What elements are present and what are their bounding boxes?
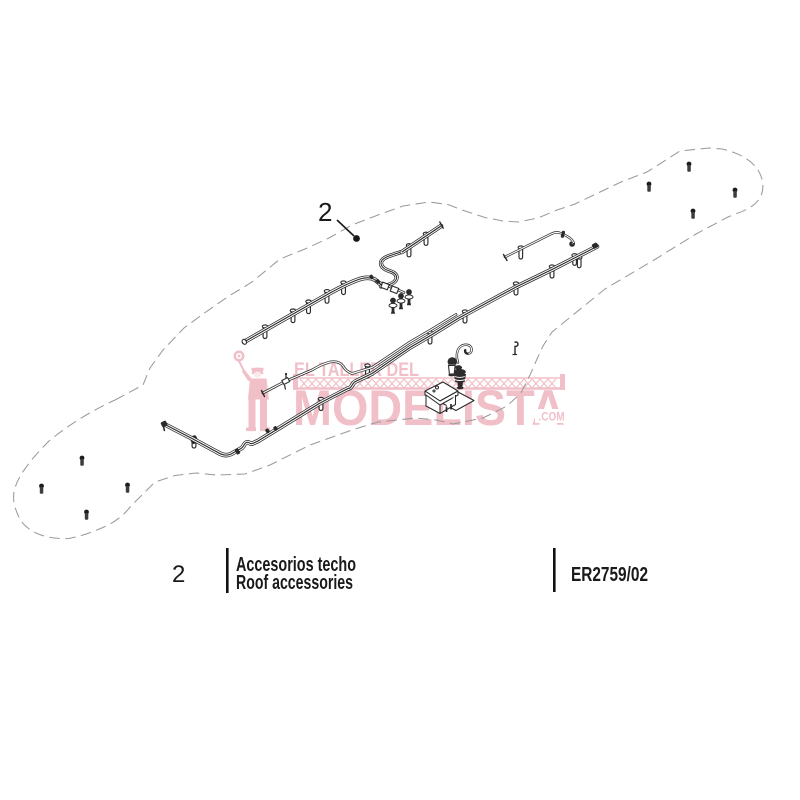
svg-text:2: 2 xyxy=(172,561,185,588)
svg-text:2: 2 xyxy=(318,197,332,227)
svg-text:Roof accessories: Roof accessories xyxy=(236,572,353,594)
svg-text:.COM: .COM xyxy=(539,412,565,424)
svg-text:ER2759/02: ER2759/02 xyxy=(571,564,648,586)
